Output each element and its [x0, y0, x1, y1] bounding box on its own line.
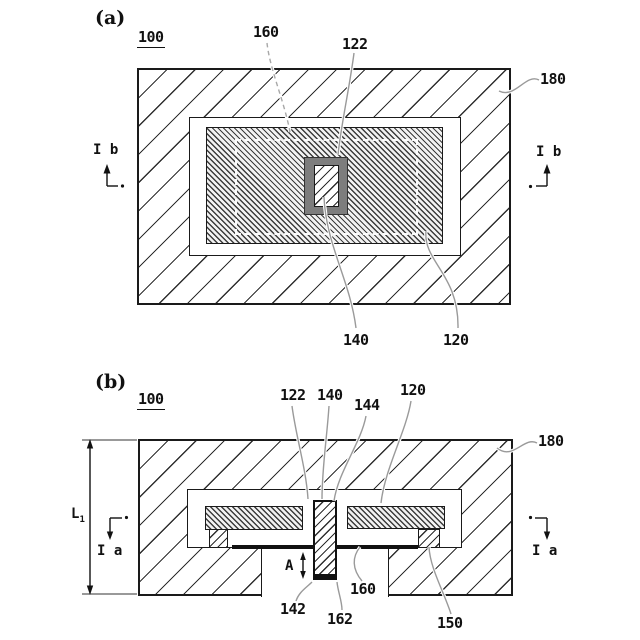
fig-b-ref-100: 100	[137, 390, 165, 410]
fig-b-left-electrode-block	[205, 506, 303, 530]
fig-a-section-marker-left	[104, 164, 125, 188]
fig-b-dimension-L1	[82, 439, 137, 595]
fig-b-label-144: 144	[354, 396, 380, 414]
fig-b-section-marker-right	[529, 516, 550, 540]
fig-b-label-180: 180	[538, 432, 564, 450]
fig-b-label-160: 160	[350, 580, 376, 598]
fig-b-label-140: 140	[317, 386, 343, 404]
fig-b-label-122: 122	[280, 386, 306, 404]
fig-b-label-150: 150	[437, 614, 463, 632]
fig-b-section-label-right: I a	[532, 543, 557, 559]
fig-b-center-pillar-140	[313, 500, 337, 580]
fig-b-right-anchor-150	[418, 529, 440, 548]
fig-b-label-162: 162	[327, 610, 353, 628]
fig-b-section-marker-left	[107, 516, 128, 540]
fig-a-section-label-left: I b	[93, 142, 118, 158]
fig-a-label-122: 122	[342, 35, 368, 53]
fig-b-section-label-left: I a	[97, 543, 122, 559]
fig-b-dim-label-L1: L1	[71, 506, 85, 525]
fig-b-right-electrode-block-120	[347, 506, 445, 529]
fig-a-tag: (a)	[95, 7, 125, 29]
fig-b-dim-label-A: A	[285, 558, 293, 574]
fig-a-label-180: 180	[540, 70, 566, 88]
fig-a-label-160: 160	[253, 23, 279, 41]
fig-a-ref-100: 100	[137, 28, 165, 48]
fig-a-center-window-140	[314, 165, 339, 207]
fig-a-label-140: 140	[343, 331, 369, 349]
fig-a-section-marker-right	[529, 164, 551, 188]
fig-b-tag: (b)	[95, 371, 126, 393]
fig-b-label-142: 142	[280, 600, 306, 618]
fig-b-left-anchor	[209, 529, 228, 548]
fig-b-label-120: 120	[400, 381, 426, 399]
fig-a-label-120: 120	[443, 331, 469, 349]
fig-b-bottom-plate-162	[314, 574, 336, 579]
patent-figure-sheet: (a) 100 160 122 180 140 120 I b I b (b) …	[0, 0, 640, 640]
fig-a-section-label-right: I b	[536, 144, 561, 160]
